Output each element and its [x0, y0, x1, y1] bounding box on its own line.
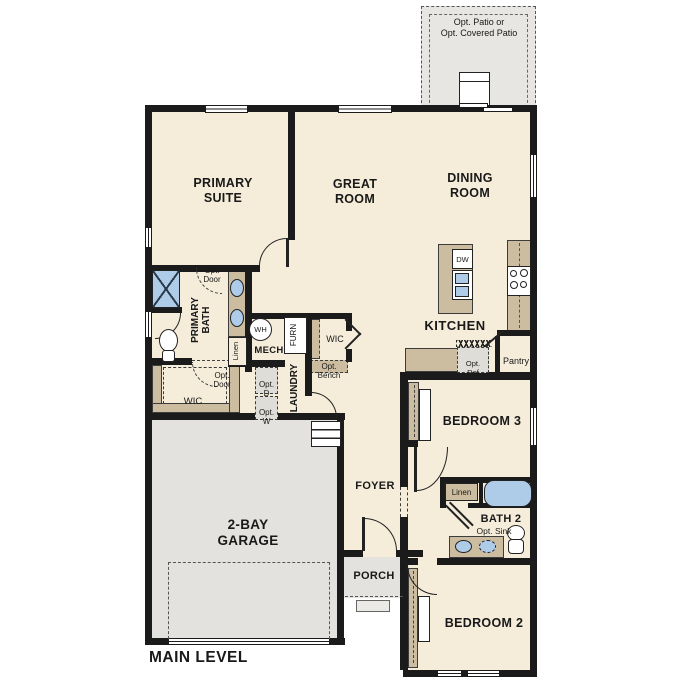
window: [338, 105, 392, 113]
window: [205, 105, 248, 113]
dishwasher-label: DW: [456, 255, 469, 264]
porch-edge-dashed: [345, 596, 403, 597]
room-label-primary-suite: PRIMARY SUITE: [178, 176, 268, 206]
garage-steps: [311, 421, 341, 447]
window: [530, 407, 537, 446]
opt-ref-label: Opt. Ref: [466, 359, 480, 377]
room-label-primary-bath: PRIMARY BATH: [190, 283, 216, 357]
porch-step: [356, 600, 390, 612]
range: [507, 266, 531, 296]
opt-washer-box: Opt. W: [255, 396, 278, 420]
wall: [400, 517, 408, 670]
room-label-mech: MECH: [248, 345, 290, 356]
linen-closet: Linen: [445, 483, 478, 501]
wall: [479, 483, 483, 503]
wall: [408, 558, 418, 565]
opt-wall-dashed: [192, 360, 230, 361]
room-label-kitchen: KITCHEN: [413, 318, 497, 333]
cased-opening: [400, 487, 408, 517]
wall: [337, 413, 344, 645]
window: [145, 311, 152, 338]
window: [437, 670, 462, 677]
opt-ref-box: Opt. Ref: [457, 347, 489, 373]
floor-plan: DW WH FURN Linen Linen Opt. D Opt. W Opt…: [0, 0, 687, 687]
room-label-great-room: GREAT ROOM: [322, 177, 388, 207]
room-label-laundry: LAUNDRY: [289, 354, 303, 422]
window: [467, 670, 500, 677]
opt-dryer-box: Opt. D: [255, 367, 278, 394]
room-label-foyer: FOYER: [350, 480, 400, 493]
room-label-bedroom2: BEDROOM 2: [437, 616, 531, 631]
room-label-bedroom3: BEDROOM 3: [437, 414, 527, 429]
patio-label: Opt. Patio or Opt. Covered Patio: [425, 17, 533, 38]
opt-sink-fixture: [479, 540, 496, 553]
wall: [288, 112, 295, 240]
window: [145, 227, 152, 248]
garage-door: [168, 638, 330, 645]
wall: [400, 440, 418, 447]
sink: [230, 279, 244, 297]
water-heater: WH: [249, 318, 272, 341]
room-label-wic-upper: WIC: [318, 334, 352, 345]
linen-label: Linen: [232, 337, 242, 365]
opt-bench-label: Opt. Bench: [309, 362, 349, 381]
sink: [455, 540, 472, 553]
wall: [437, 558, 537, 565]
furnace-label: FURN: [290, 318, 300, 352]
wall: [337, 550, 363, 557]
wall: [145, 105, 152, 645]
room-label-wic-lower: WIC: [168, 396, 218, 407]
wall: [400, 380, 408, 487]
shower: [152, 270, 180, 308]
patio-steps: [459, 72, 490, 106]
plan-title: MAIN LEVEL: [149, 649, 319, 667]
window: [530, 154, 537, 198]
sink: [230, 309, 244, 327]
bedroom3-closet-shelf: [408, 382, 419, 441]
water-heater-label: WH: [254, 325, 267, 334]
closet-door-panel: [418, 596, 430, 642]
opt-door-label: Opt. Door: [201, 371, 243, 390]
garage-apron: [168, 562, 330, 639]
opt-door-label: Opt. Door: [193, 266, 231, 285]
linen-label: Linen: [452, 488, 472, 497]
wall: [346, 349, 352, 362]
kitchen-sink: [452, 270, 473, 300]
sliding-door: [483, 107, 513, 112]
closet-door-panel: [419, 389, 431, 441]
room-label-dining-room: DINING ROOM: [437, 171, 503, 201]
toilet: [157, 329, 181, 363]
room-label-porch: PORCH: [349, 570, 399, 583]
room-label-pantry: Pantry: [494, 356, 538, 367]
room-label-bath2: BATH 2: [473, 513, 529, 526]
room-label-garage: 2-BAY GARAGE: [195, 517, 301, 549]
dishwasher: DW: [452, 249, 473, 269]
opt-sink-label: Opt. Sink: [466, 526, 522, 536]
bathtub: [484, 480, 532, 507]
opt-ref-hatch: [456, 340, 492, 347]
kitchen-counter-bottom: [405, 348, 459, 372]
